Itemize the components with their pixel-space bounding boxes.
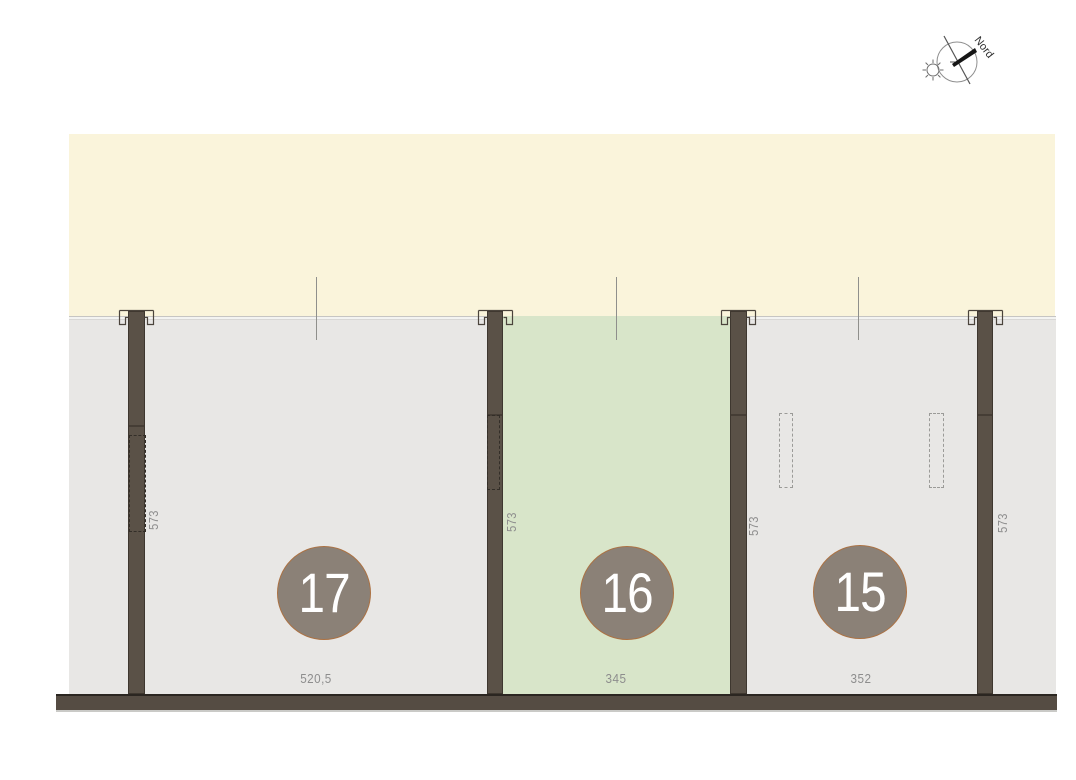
plot-16-center-tick [616, 277, 617, 340]
wall-4-depth-dimension: 573 [996, 504, 1010, 541]
dashed-outline-marker [487, 415, 500, 490]
wall-3-depth-dimension: 573 [747, 507, 761, 544]
plot-17-center-tick [316, 277, 317, 340]
wall-joint-line [731, 414, 746, 416]
wall-cap-icon [720, 309, 757, 331]
wall-cap-icon [967, 309, 1004, 331]
plot-badge-15[interactable]: 15 [813, 545, 907, 639]
wall-joint-line [129, 425, 144, 427]
dashed-outline-marker [929, 413, 944, 488]
plot-17-width-dimension: 520,5 [280, 672, 352, 686]
site-plan: Nord 573 573 573 573 [0, 0, 1076, 780]
plot-16-width-dimension: 345 [580, 672, 652, 686]
plot-16-number: 16 [601, 565, 652, 621]
wall-4 [977, 311, 993, 694]
wall-joint-line [978, 414, 992, 416]
plot-15-center-tick [858, 277, 859, 340]
plot-badge-17[interactable]: 17 [277, 546, 371, 640]
plot-15-number: 15 [834, 564, 885, 620]
dashed-outline-marker [129, 435, 146, 532]
dashed-outline-marker [779, 413, 793, 488]
upper-zone [69, 134, 1055, 316]
plots-area [69, 316, 1056, 694]
sun-icon [923, 60, 944, 81]
wall-2-depth-dimension: 573 [505, 503, 519, 540]
compass-axis-line [944, 36, 970, 84]
wall-1-depth-dimension: 573 [147, 501, 161, 538]
plot-15-width-dimension: 352 [825, 672, 897, 686]
wall-cap-icon [118, 309, 155, 331]
plot-badge-16[interactable]: 16 [580, 546, 674, 640]
north-compass: Nord [903, 18, 1018, 113]
wall-2 [487, 311, 503, 694]
compass-north-label: Nord [972, 34, 996, 60]
wall-3 [730, 311, 747, 694]
wall-cap-icon [477, 309, 514, 331]
bottom-wall [56, 694, 1057, 710]
plot-17-number: 17 [298, 565, 349, 621]
